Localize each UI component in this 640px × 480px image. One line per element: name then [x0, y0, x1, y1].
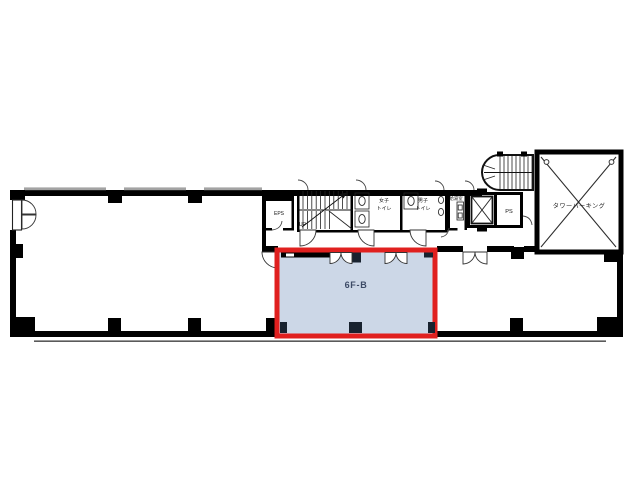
unit-6fb: 6F-B: [277, 250, 435, 336]
stair-up-label: UP: [299, 222, 307, 228]
eps-shaft: EPS: [263, 192, 294, 231]
left-entrance-door: [9, 200, 36, 230]
top-wall-vents: [298, 180, 474, 190]
eps-label: EPS: [274, 211, 285, 217]
womens-toilet: 女子 トイレ: [353, 190, 403, 246]
mens-toilet: 男子 トイレ: [402, 190, 448, 246]
kitchenette-label: 給湯室: [449, 195, 463, 202]
stairwell: UP: [297, 190, 353, 246]
mens-toilet-label-1: 男子: [418, 197, 428, 204]
service-core: EPS UP 女子 トイレ: [262, 189, 532, 253]
corridor-double-door: [463, 252, 487, 264]
floor-plan-page: EPS UP 女子 トイレ: [0, 0, 640, 480]
tower-parking: タワーパーキング: [537, 152, 621, 252]
tower-parking-label: タワーパーキング: [553, 202, 605, 210]
elevator: [467, 189, 497, 232]
floor-plan-svg: EPS UP 女子 トイレ: [0, 0, 640, 480]
mens-toilet-label-2: トイレ: [415, 206, 430, 212]
unit-6fb-label: 6F-B: [345, 280, 368, 290]
womens-toilet-label-2: トイレ: [376, 206, 391, 212]
kitchenette: 給湯室: [441, 190, 467, 237]
ps-label: PS: [505, 209, 513, 215]
womens-toilet-label-1: 女子: [379, 197, 389, 204]
ps-shaft: PS: [497, 192, 532, 228]
exterior-stair: [482, 152, 533, 191]
